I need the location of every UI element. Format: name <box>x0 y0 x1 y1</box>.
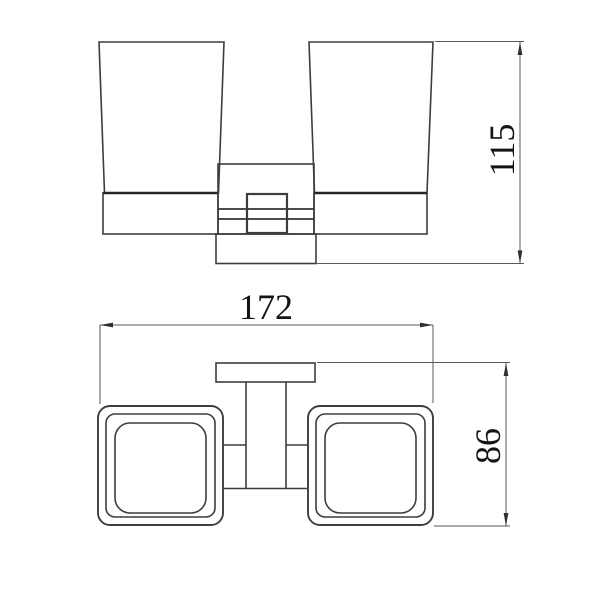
plan-left-holder-rim <box>106 414 215 517</box>
plan-width-dimension: 172 <box>100 287 433 404</box>
plan-view: 172 86 <box>98 287 510 526</box>
front-bracket-lower-section <box>218 219 314 234</box>
dim-172-label: 172 <box>239 287 293 327</box>
front-right-holder-ring <box>314 193 427 234</box>
dim-86-label: 86 <box>468 428 508 464</box>
technical-drawing: 115 <box>0 0 600 600</box>
dim-115-arrow-bottom <box>518 251 523 264</box>
plan-right-holder-rim <box>316 414 425 517</box>
dim-86-arrow-bottom <box>504 513 509 526</box>
front-bracket-crossbar <box>218 209 314 219</box>
plan-left-holder-outer <box>98 406 223 525</box>
front-bracket-foot-plate <box>216 234 316 264</box>
plan-right-holder-outer <box>308 406 433 525</box>
plan-left-holder-cup-opening <box>115 423 206 513</box>
front-bracket-upper-plate <box>218 164 314 209</box>
front-left-cup-outline <box>99 42 224 193</box>
dim-172-arrow-right <box>420 323 433 328</box>
plan-mount-plate <box>216 363 315 382</box>
plan-depth-dimension: 86 <box>317 363 510 527</box>
front-bracket-arm-section-square <box>247 194 287 233</box>
drawing-sheet: 115 <box>0 0 600 600</box>
front-height-dimension: 115 <box>317 42 524 264</box>
dim-86-arrow-top <box>504 363 509 376</box>
dim-115-label: 115 <box>482 124 522 177</box>
front-view: 115 <box>99 42 524 264</box>
front-left-holder-ring <box>103 193 218 234</box>
plan-right-holder-cup-opening <box>325 423 416 513</box>
dim-172-arrow-left <box>100 323 113 328</box>
front-right-cup-outline <box>309 42 433 193</box>
dim-115-arrow-top <box>518 42 523 55</box>
